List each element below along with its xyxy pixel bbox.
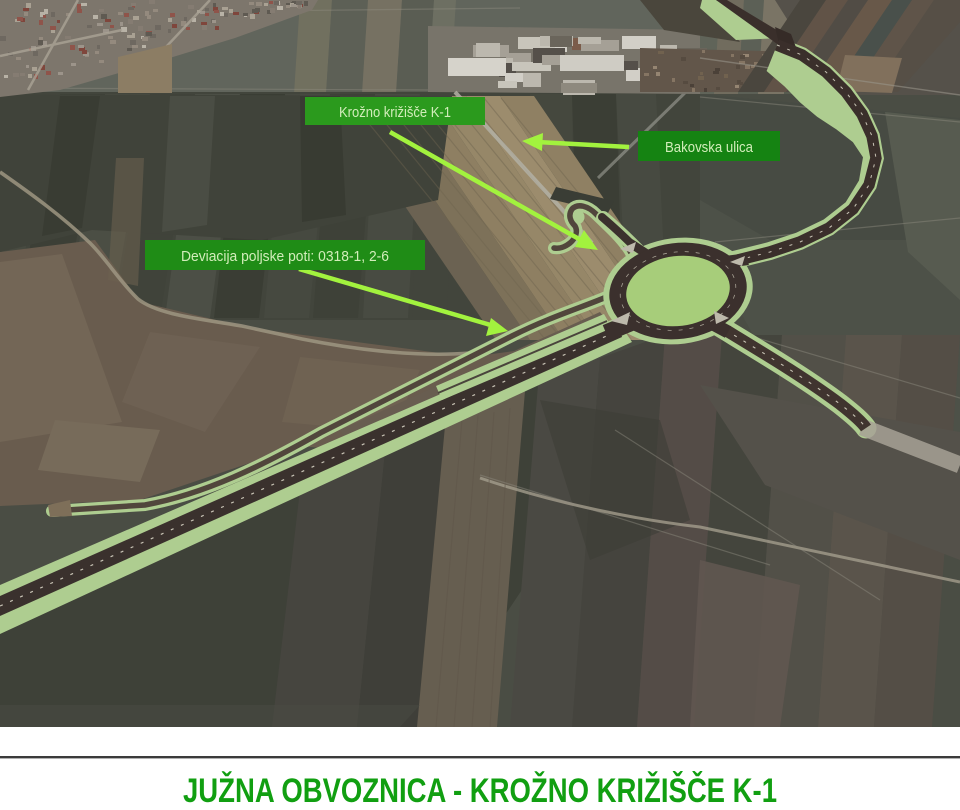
svg-text:Deviacija poljske poti: 0318-1: Deviacija poljske poti: 0318-1, 2-6 xyxy=(181,249,389,265)
svg-text:Krožno križišče K-1: Krožno križišče K-1 xyxy=(339,105,451,121)
svg-text:Bakovska ulica: Bakovska ulica xyxy=(665,140,754,156)
svg-text:JUŽNA OBVOZNICA - KROŽNO KRIŽI: JUŽNA OBVOZNICA - KROŽNO KRIŽIŠČE K-1 xyxy=(183,771,777,810)
